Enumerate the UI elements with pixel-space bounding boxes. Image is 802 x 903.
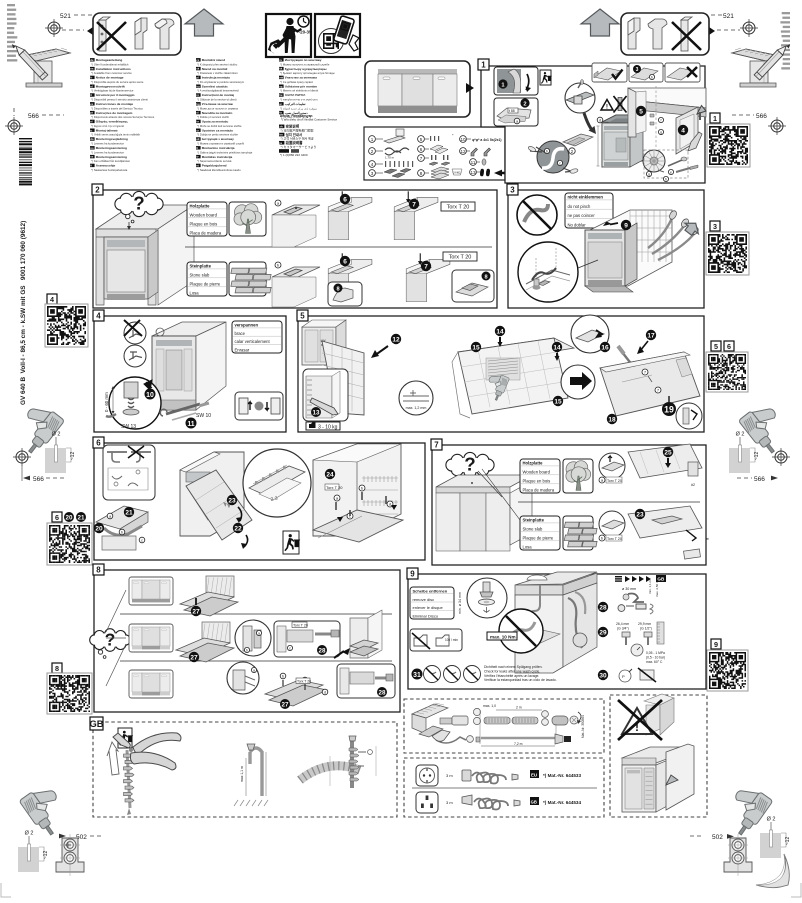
svg-text:Montāžas instrukcija: Montāžas instrukcija bbox=[202, 155, 233, 159]
svg-text:7,2 m: 7,2 m bbox=[514, 742, 523, 746]
svg-text:9: 9 bbox=[624, 223, 628, 230]
svg-text:es: es bbox=[90, 103, 93, 106]
svg-text:verspannen: verspannen bbox=[235, 323, 259, 328]
svg-text:11: 11 bbox=[187, 421, 194, 428]
svg-text:Ø 2: Ø 2 bbox=[767, 817, 776, 823]
svg-text:26,4 mm: 26,4 mm bbox=[616, 622, 629, 626]
svg-text:?: ? bbox=[105, 629, 116, 649]
svg-text:18: 18 bbox=[608, 417, 616, 424]
svg-text:a: a bbox=[258, 631, 260, 635]
svg-text:3 m: 3 m bbox=[446, 800, 453, 805]
svg-text:15: 15 bbox=[554, 399, 562, 406]
svg-text:*) Saatavissa huoltopalvelusta: *) Saatavissa huoltopalvelusta bbox=[91, 168, 128, 172]
svg-text:c: c bbox=[141, 539, 143, 543]
svg-text:*) Leveres fra kundeservice: *) Leveres fra kundeservice bbox=[91, 150, 124, 154]
svg-text:~12: ~12 bbox=[43, 851, 49, 860]
svg-text:566: 566 bbox=[28, 113, 39, 120]
svg-text:No doblar: No doblar bbox=[568, 223, 587, 228]
svg-text:7: 7 bbox=[434, 441, 439, 450]
svg-text:?: ? bbox=[464, 454, 475, 475]
svg-text:*) A vevőszolgálatnál beszerez: *) A vevőszolgálatnál beszerezhető bbox=[197, 89, 239, 93]
svg-text:*) Қызмет көрсету орталыдан ал: *) Қызмет көрсету орталыдан алуға болады bbox=[280, 71, 335, 75]
svg-text:21: 21 bbox=[78, 515, 85, 522]
svg-text:5: 5 bbox=[714, 342, 718, 351]
svg-text:*) Saņemama klientu servisā: *) Saņemama klientu servisā bbox=[197, 159, 232, 163]
svg-text:1: 1 bbox=[481, 61, 486, 70]
svg-text:Udhëzime për montim: Udhëzime për montim bbox=[285, 84, 318, 88]
svg-text:pl: pl bbox=[196, 76, 199, 80]
svg-text:el: el bbox=[90, 120, 92, 124]
svg-text:*) Dostanete v službe zákazník: *) Dostanete v službe zákazníkom bbox=[197, 71, 238, 75]
svg-text:23: 23 bbox=[636, 512, 644, 519]
svg-text:*) カスタマーサービスより: *) カスタマーサービスより bbox=[281, 144, 317, 149]
svg-text:19: 19 bbox=[664, 405, 674, 415]
svg-text:cs: cs bbox=[196, 59, 199, 62]
svg-text:3: 3 bbox=[371, 171, 374, 176]
svg-text:566: 566 bbox=[754, 476, 765, 483]
svg-text:*) Galima įsigyti techninės pr: *) Galima įsigyti techninės priežiūros t… bbox=[197, 150, 253, 154]
svg-text:29: 29 bbox=[599, 630, 607, 637]
svg-text:*) Mat.-Nr. 644533: *) Mat.-Nr. 644533 bbox=[543, 773, 581, 778]
svg-text:de: de bbox=[90, 58, 94, 62]
svg-text:Plaque en bois: Plaque en bois bbox=[190, 222, 218, 227]
svg-text:g: g bbox=[660, 130, 662, 134]
svg-text:7: 7 bbox=[412, 202, 416, 209]
svg-text:13: 13 bbox=[470, 170, 476, 175]
svg-text:~12: ~12 bbox=[785, 837, 791, 846]
svg-text:1: 1 bbox=[371, 137, 374, 142]
svg-text:*) Disponible auprès du servic: *) Disponible auprès du service après-ve… bbox=[91, 80, 144, 84]
svg-text:Torx T 20: Torx T 20 bbox=[326, 485, 343, 490]
svg-text:Istruzioni per il montaggio: Istruzioni per il montaggio bbox=[96, 93, 135, 97]
svg-text:f: f bbox=[661, 118, 662, 122]
svg-text:14: 14 bbox=[496, 329, 504, 336]
svg-text:*) 고객 서비스구 에서 제공: *) 고객 서비스구 에서 제공 bbox=[281, 136, 314, 141]
svg-text:3 m: 3 m bbox=[446, 773, 453, 778]
svg-text:uk: uk bbox=[196, 137, 200, 141]
svg-text:*) Može se dobiti kod servisne: *) Može se dobiti kod servisne službe bbox=[197, 124, 242, 128]
svg-text:ru: ru bbox=[279, 58, 282, 62]
svg-text:Losa: Losa bbox=[190, 291, 200, 296]
svg-text:ar: ar bbox=[279, 102, 282, 106]
svg-text:no: no bbox=[90, 147, 94, 150]
svg-text:12: 12 bbox=[460, 149, 466, 154]
svg-text:b: b bbox=[546, 149, 548, 153]
svg-text:*) Saadaval klienditeeninduse: *) Saadaval klienditeeninduse kaudu bbox=[197, 168, 241, 172]
svg-text:da: da bbox=[90, 137, 94, 141]
svg-text:Упътване за монтаж: Упътване за монтаж bbox=[202, 102, 234, 106]
svg-text:5: 5 bbox=[420, 137, 423, 142]
svg-text:Құрастыру нұсқаулықтары: Құрастыру нұсқаулықтары bbox=[285, 67, 327, 71]
svg-text:Instrucțiuni de montaj: Instrucțiuni de montaj bbox=[202, 93, 234, 97]
svg-text:29,9 mm: 29,9 mm bbox=[638, 622, 651, 626]
svg-text:*) Disponibles a través del Se: *) Disponibles a través del Servicio Téc… bbox=[91, 106, 143, 110]
svg-text:Montaj talimatı: Montaj talimatı bbox=[96, 128, 118, 132]
svg-text:fr: fr bbox=[90, 76, 92, 80]
svg-text:kk: kk bbox=[279, 67, 282, 71]
svg-text:~20-35: ~20-35 bbox=[298, 30, 312, 35]
svg-text:pt: pt bbox=[90, 111, 93, 115]
svg-text:*) Dobija se preko servisne sl: *) Dobija se preko servisne službe bbox=[197, 133, 238, 137]
svg-text:Notice de montage: Notice de montage bbox=[96, 76, 124, 80]
svg-text:6: 6 bbox=[55, 513, 59, 522]
svg-text:Montážní návod: Montážní návod bbox=[202, 58, 225, 62]
svg-text:Steinplatte: Steinplatte bbox=[190, 264, 212, 269]
svg-text:#2: #2 bbox=[691, 483, 695, 487]
svg-text:max. 1,0: max. 1,0 bbox=[483, 704, 496, 708]
svg-text:Stone slab: Stone slab bbox=[190, 273, 210, 278]
svg-text:Placa de madera: Placa de madera bbox=[523, 488, 555, 493]
svg-text:max. 10 Nm: max. 10 Nm bbox=[490, 634, 516, 639]
svg-text:*) Leveres fra kundeservice: *) Leveres fra kundeservice bbox=[91, 142, 124, 146]
svg-text:6: 6 bbox=[343, 259, 347, 266]
svg-text:*) Merren në shërbimin e klien: *) Merren në shërbimin e klientit bbox=[280, 89, 318, 93]
svg-text:Wooden board: Wooden board bbox=[523, 470, 551, 475]
svg-text:Instrukcja montażu: Instrukcja montażu bbox=[202, 76, 230, 80]
svg-text:Mat.-Nr. 350564: Mat.-Nr. 350564 bbox=[581, 715, 585, 738]
svg-text:3 - 10 kg: 3 - 10 kg bbox=[318, 425, 338, 431]
svg-text:Torx T 20: Torx T 20 bbox=[449, 255, 472, 261]
svg-text:28: 28 bbox=[599, 605, 607, 612]
svg-text:3: 3 bbox=[510, 186, 515, 195]
svg-text:3: 3 bbox=[713, 222, 717, 231]
svg-text:hr: hr bbox=[196, 120, 199, 124]
svg-text:24: 24 bbox=[326, 472, 334, 479]
svg-text:remove disc: remove disc bbox=[413, 597, 435, 602]
svg-text:Monteringsvejledning: Monteringsvejledning bbox=[96, 137, 128, 141]
svg-text:en: en bbox=[90, 68, 93, 71]
svg-text:27: 27 bbox=[190, 655, 198, 662]
svg-text:it: it bbox=[90, 93, 92, 97]
svg-text:Montagevoorschrift: Montagevoorschrift bbox=[96, 84, 125, 88]
svg-text:hu: hu bbox=[196, 84, 200, 88]
svg-text:0 - 60 mm: 0 - 60 mm bbox=[104, 392, 109, 412]
svg-text:הוראות הרכבה: הוראות הרכבה bbox=[285, 93, 306, 97]
svg-text:2: 2 bbox=[371, 149, 374, 154]
svg-text:lt: lt bbox=[196, 146, 198, 150]
svg-text:5: 5 bbox=[300, 312, 305, 321]
svg-text:*) Έχουν από την υπηρεσία: *) Έχουν από την υπηρεσία bbox=[91, 124, 124, 128]
svg-text:Упатство за монтажа: Упатство за монтажа bbox=[285, 76, 317, 80]
svg-text:9: 9 bbox=[410, 570, 415, 579]
svg-text:Инструкция по монтажу: Инструкция по монтажу bbox=[285, 58, 322, 62]
svg-text:Torx T 20: Torx T 20 bbox=[447, 205, 470, 211]
svg-text:c: c bbox=[559, 161, 561, 165]
svg-text:Holzplatte: Holzplatte bbox=[523, 461, 544, 466]
svg-text:10: 10 bbox=[146, 392, 154, 399]
svg-text:6: 6 bbox=[420, 147, 423, 152]
svg-text:ro: ro bbox=[196, 93, 199, 97]
svg-text:1,70 m: 1,70 m bbox=[385, 156, 395, 160]
svg-text:*) Можна отримати в сервісній: *) Можна отримати в сервісній службі bbox=[197, 142, 244, 146]
svg-text:GB: GB bbox=[531, 799, 537, 804]
svg-text:Enrasar: Enrasar bbox=[235, 348, 250, 353]
svg-text:8: 8 bbox=[420, 171, 423, 176]
svg-text:Stone slab: Stone slab bbox=[523, 527, 543, 532]
svg-text:enlever le disque: enlever le disque bbox=[413, 605, 444, 610]
svg-text:0,05 - 1 MPa: 0,05 - 1 MPa bbox=[646, 651, 665, 655]
svg-text:b: b bbox=[121, 531, 123, 535]
svg-text:28: 28 bbox=[319, 648, 326, 655]
svg-text:Návod na montáž: Návod na montáž bbox=[202, 67, 228, 71]
svg-text:21: 21 bbox=[125, 510, 133, 517]
svg-text:~12: ~12 bbox=[754, 452, 760, 461]
svg-text:30: 30 bbox=[599, 673, 607, 680]
svg-text:Paigaldusjuhend: Paigaldusjuhend bbox=[202, 164, 227, 168]
svg-text:11: 11 bbox=[471, 160, 476, 165]
svg-text:max. 60° C: max. 60° C bbox=[646, 660, 663, 664]
svg-text:*) Disponíveis através dos nos: *) Disponíveis através dos nossos Serviç… bbox=[91, 115, 155, 119]
svg-text:(0,5 - 10 bar): (0,5 - 10 bar) bbox=[646, 655, 665, 659]
svg-text:*) Yetkili servis aracılığıyla: *) Yetkili servis aracılığıyla temin edi… bbox=[91, 133, 140, 137]
svg-text:*) Do uzyskania w punkcie serw: *) Do uzyskania w punkcie serwisowym bbox=[197, 80, 245, 84]
svg-text:!: ! bbox=[606, 104, 608, 111]
svg-text:8: 8 bbox=[484, 274, 487, 280]
svg-text:6: 6 bbox=[727, 342, 731, 351]
svg-text:min. ø 34 mm: min. ø 34 mm bbox=[458, 592, 462, 614]
svg-text:502: 502 bbox=[712, 834, 723, 841]
svg-text:*) Mat.-Nr. 644534: *) Mat.-Nr. 644534 bbox=[543, 800, 581, 805]
svg-text:Wooden board: Wooden board bbox=[190, 213, 218, 218]
svg-text:Torx T 20: Torx T 20 bbox=[293, 624, 308, 628]
svg-text:et: et bbox=[196, 164, 198, 168]
svg-text:h: h bbox=[665, 177, 667, 181]
svg-text:Інструкція з монтажу: Інструкція з монтажу bbox=[202, 137, 234, 141]
svg-text:bg: bg bbox=[196, 102, 200, 106]
svg-text:31: 31 bbox=[413, 672, 421, 679]
svg-text:Torx T 20: Torx T 20 bbox=[607, 537, 622, 541]
svg-text:GV 640 B Voll-I - 86,5 cm - k: GV 640 B Voll-I - 86,5 cm - k.SW mit GS … bbox=[20, 221, 27, 405]
svg-text:8: 8 bbox=[96, 566, 101, 575]
svg-text:EU: EU bbox=[531, 772, 537, 777]
svg-text:Torx T 20: Torx T 20 bbox=[607, 479, 622, 483]
svg-text:sr: sr bbox=[196, 128, 199, 132]
svg-text:10: 10 bbox=[460, 137, 466, 142]
svg-text:fi: fi bbox=[90, 164, 92, 168]
svg-text:Plaque de pierre: Plaque de pierre bbox=[523, 536, 554, 541]
svg-text:Instruções de montagem: Instruções de montagem bbox=[96, 111, 133, 115]
svg-text:Holzplatte: Holzplatte bbox=[190, 204, 211, 209]
svg-text:*) Kan erhållas från kundtjäns: *) Kan erhållas från kundtjänsten bbox=[91, 159, 130, 163]
svg-text:brace: brace bbox=[235, 331, 246, 336]
svg-text:*) Може да се получи от сервиз: *) Може да се получи от сервиза bbox=[197, 106, 238, 110]
svg-text:10 l / min: 10 l / min bbox=[445, 638, 458, 642]
svg-text:Vérifiez l'étanchéité après un: Vérifiez l'étanchéité après un lavage. bbox=[484, 674, 539, 678]
svg-text:*) aria disku chun mindial Cus: *) aria disku chun mindial Customer Serv… bbox=[281, 118, 337, 122]
svg-text:max 1,1 m: max 1,1 m bbox=[240, 766, 244, 782]
svg-text:*) 可向客户服务部门索取: *) 可向客户服务部门索取 bbox=[281, 127, 314, 132]
svg-text:e: e bbox=[670, 170, 672, 174]
svg-text:*) Се добива преку сервис: *) Се добива преку сервис bbox=[280, 80, 314, 84]
svg-text:b: b bbox=[651, 75, 653, 79]
svg-text:521: 521 bbox=[60, 13, 71, 20]
svg-text:*) متوفرة لدى مركز خدمة العملا: *) متوفرة لدى مركز خدمة العملاء bbox=[280, 106, 317, 110]
svg-text:Eliminar Disco: Eliminar Disco bbox=[413, 614, 439, 619]
svg-text:23: 23 bbox=[228, 498, 236, 505]
svg-text:*) Obținute de la service-ul c: *) Obținute de la service-ul clienți bbox=[197, 98, 237, 102]
svg-text:15: 15 bbox=[472, 345, 480, 352]
svg-text:8: 8 bbox=[336, 286, 339, 292]
svg-text:Οδηγίες τοποθέτησης: Οδηγίες τοποθέτησης bbox=[96, 120, 128, 124]
svg-text:*) Available from customer ser: *) Available from customer service bbox=[91, 71, 132, 75]
svg-text:17: 17 bbox=[647, 333, 655, 340]
svg-text:6: 6 bbox=[96, 439, 101, 448]
svg-text:nicht einklemmen: nicht einklemmen bbox=[568, 195, 604, 200]
svg-text:d: d bbox=[389, 502, 391, 507]
svg-text:GB: GB bbox=[89, 719, 103, 729]
svg-text:7: 7 bbox=[424, 264, 428, 271]
svg-text:566: 566 bbox=[756, 113, 767, 120]
svg-text:Scheibe entfernen: Scheibe entfernen bbox=[413, 589, 448, 594]
svg-text:3: 3 bbox=[636, 67, 639, 73]
svg-text:b: b bbox=[282, 675, 284, 679]
svg-text:Plaque en bois: Plaque en bois bbox=[523, 479, 551, 484]
svg-text:521: 521 bbox=[723, 13, 734, 20]
svg-text:a: a bbox=[253, 668, 255, 672]
svg-text:12: 12 bbox=[392, 337, 400, 344]
svg-text:max. 1,2 mm: max. 1,2 mm bbox=[406, 406, 427, 410]
svg-text:Plaque de pierre: Plaque de pierre bbox=[190, 282, 221, 287]
svg-text:13: 13 bbox=[313, 410, 320, 417]
svg-text:*) ניתן להשיג דרך שירות הלקוחו: *) ניתן להשיג דרך שירות הלקוחות bbox=[280, 98, 317, 102]
svg-text:mk: mk bbox=[279, 76, 283, 80]
svg-text:nl: nl bbox=[90, 84, 93, 88]
svg-text:Instrucciones de montaje: Instrucciones de montaje bbox=[96, 102, 134, 106]
svg-text:φ*φ* a 4x1 5x(2x1): φ*φ* a 4x1 5x(2x1) bbox=[472, 138, 502, 142]
svg-text:g: g bbox=[648, 172, 650, 176]
svg-text:*) Über Kundendienst erhältlic: *) Über Kundendienst erhältlich bbox=[91, 62, 129, 66]
svg-text:20: 20 bbox=[66, 515, 73, 522]
svg-text:4: 4 bbox=[50, 295, 54, 304]
svg-text:do not pinch: do not pinch bbox=[568, 204, 591, 209]
svg-text:sv: sv bbox=[90, 156, 93, 159]
svg-text:Monteringsanvisning: Monteringsanvisning bbox=[96, 146, 127, 150]
svg-text:14: 14 bbox=[553, 345, 561, 352]
svg-text:Torx T 20: Torx T 20 bbox=[297, 680, 311, 684]
svg-text:*) Disponibili presso il servi: *) Disponibili presso il servizio assist… bbox=[91, 98, 148, 102]
svg-text:1: 1 bbox=[713, 114, 717, 123]
svg-text:5: 5 bbox=[639, 109, 643, 116]
svg-text:ø 30 mm: ø 30 mm bbox=[622, 587, 636, 591]
svg-text:(G 1/2"): (G 1/2") bbox=[640, 626, 652, 630]
svg-text:*) Verkrijgbaar bij de klanten: *) Verkrijgbaar bij de klantenservice bbox=[91, 89, 134, 93]
svg-text:27: 27 bbox=[192, 609, 200, 616]
svg-text:27: 27 bbox=[282, 702, 289, 709]
svg-text:*) Dobite pri servisni službi: *) Dobite pri servisni službi bbox=[197, 115, 229, 119]
svg-text:(G 3/4"): (G 3/4") bbox=[617, 626, 629, 630]
svg-text:tr: tr bbox=[90, 128, 92, 132]
svg-text:d: d bbox=[599, 119, 601, 123]
svg-text:?: ? bbox=[133, 193, 144, 214]
svg-text:6: 6 bbox=[343, 197, 347, 204]
svg-text:Placa de madera: Placa de madera bbox=[190, 231, 222, 236]
svg-text:~12: ~12 bbox=[70, 452, 76, 461]
svg-text:Montavimo instrukcija: Montavimo instrukcija bbox=[202, 146, 235, 150]
svg-text:7: 7 bbox=[420, 156, 423, 161]
svg-text:4: 4 bbox=[371, 162, 374, 167]
svg-text:Asennusohje: Asennusohje bbox=[96, 164, 116, 168]
svg-text:2: 2 bbox=[95, 186, 100, 195]
svg-text:28: 28 bbox=[379, 690, 386, 697]
svg-text:Verificar la estanqueidad tras: Verificar la estanqueidad tras un ciclo … bbox=[484, 678, 557, 682]
svg-text:SW 10: SW 10 bbox=[196, 413, 211, 419]
svg-text:4: 4 bbox=[96, 312, 101, 321]
svg-text:min. 1,1 m: min. 1,1 m bbox=[648, 579, 652, 594]
svg-text:Steinplatte: Steinplatte bbox=[523, 518, 545, 523]
svg-text:4: 4 bbox=[681, 128, 685, 135]
svg-text:22: 22 bbox=[234, 526, 242, 533]
svg-text:20: 20 bbox=[95, 526, 103, 533]
svg-text:ne pas coincer: ne pas coincer bbox=[568, 213, 596, 218]
svg-text:Monteringsanvisning: Monteringsanvisning bbox=[96, 155, 127, 159]
svg-text:566: 566 bbox=[33, 476, 44, 483]
svg-text:max. 2,50 m: max. 2,50 m bbox=[655, 580, 659, 597]
svg-text:Installation instructions: Installation instructions bbox=[96, 67, 131, 71]
svg-text:P: P bbox=[622, 674, 625, 679]
svg-text:2 m: 2 m bbox=[516, 705, 522, 709]
svg-text:Szerelési utasítás: Szerelési utasítás bbox=[202, 84, 228, 88]
svg-text:9: 9 bbox=[714, 640, 718, 649]
svg-text:*) Можно получить в сервисной: *) Можно получить в сервисной службе bbox=[280, 62, 330, 66]
svg-text:Ø 2: Ø 2 bbox=[736, 432, 745, 438]
svg-text:2-N62: 2-N62 bbox=[453, 171, 461, 175]
svg-text:Dichtheit nach einem Spülgang: Dichtheit nach einem Spülgang prüfen. bbox=[484, 665, 542, 669]
svg-text:Uputstvo za montažu: Uputstvo za montažu bbox=[202, 128, 233, 132]
svg-text:16: 16 bbox=[601, 345, 609, 352]
svg-text:⌜: ⌜ bbox=[452, 133, 454, 138]
svg-text:b: b bbox=[246, 648, 248, 652]
svg-text:*) 1 (0)860 222 4400: *) 1 (0)860 222 4400 bbox=[280, 153, 308, 157]
svg-text:d: d bbox=[324, 691, 326, 695]
svg-text:sq: sq bbox=[279, 85, 282, 88]
svg-text:Losa: Losa bbox=[523, 545, 533, 550]
svg-text:SW 13: SW 13 bbox=[121, 424, 136, 430]
svg-text:*) K dispozici přes servisní s: *) K dispozici přes servisní službu bbox=[197, 62, 238, 66]
svg-text:c: c bbox=[289, 646, 291, 650]
svg-text:≅: ≅ bbox=[706, 537, 709, 541]
svg-text:Ø 2: Ø 2 bbox=[52, 432, 61, 438]
svg-text:t 88: t 88 bbox=[509, 109, 515, 113]
svg-text:8: 8 bbox=[55, 664, 59, 673]
svg-text:Ø 2: Ø 2 bbox=[25, 831, 34, 837]
svg-text:Check for leaks after one wash: Check for leaks after one wash cycle. bbox=[484, 669, 540, 673]
svg-text:sl: sl bbox=[196, 111, 198, 115]
svg-text:sk: sk bbox=[196, 67, 199, 71]
svg-text:2: 2 bbox=[523, 101, 526, 107]
svg-text:calar verticalement: calar verticalement bbox=[235, 339, 271, 344]
svg-text:Montageanleitung: Montageanleitung bbox=[96, 58, 123, 62]
svg-text:Uputa za montažu: Uputa za montažu bbox=[202, 120, 229, 124]
svg-text:25: 25 bbox=[664, 450, 672, 457]
svg-text:he: he bbox=[279, 93, 283, 97]
svg-text:Navodila za montažo: Navodila za montažo bbox=[202, 111, 233, 115]
